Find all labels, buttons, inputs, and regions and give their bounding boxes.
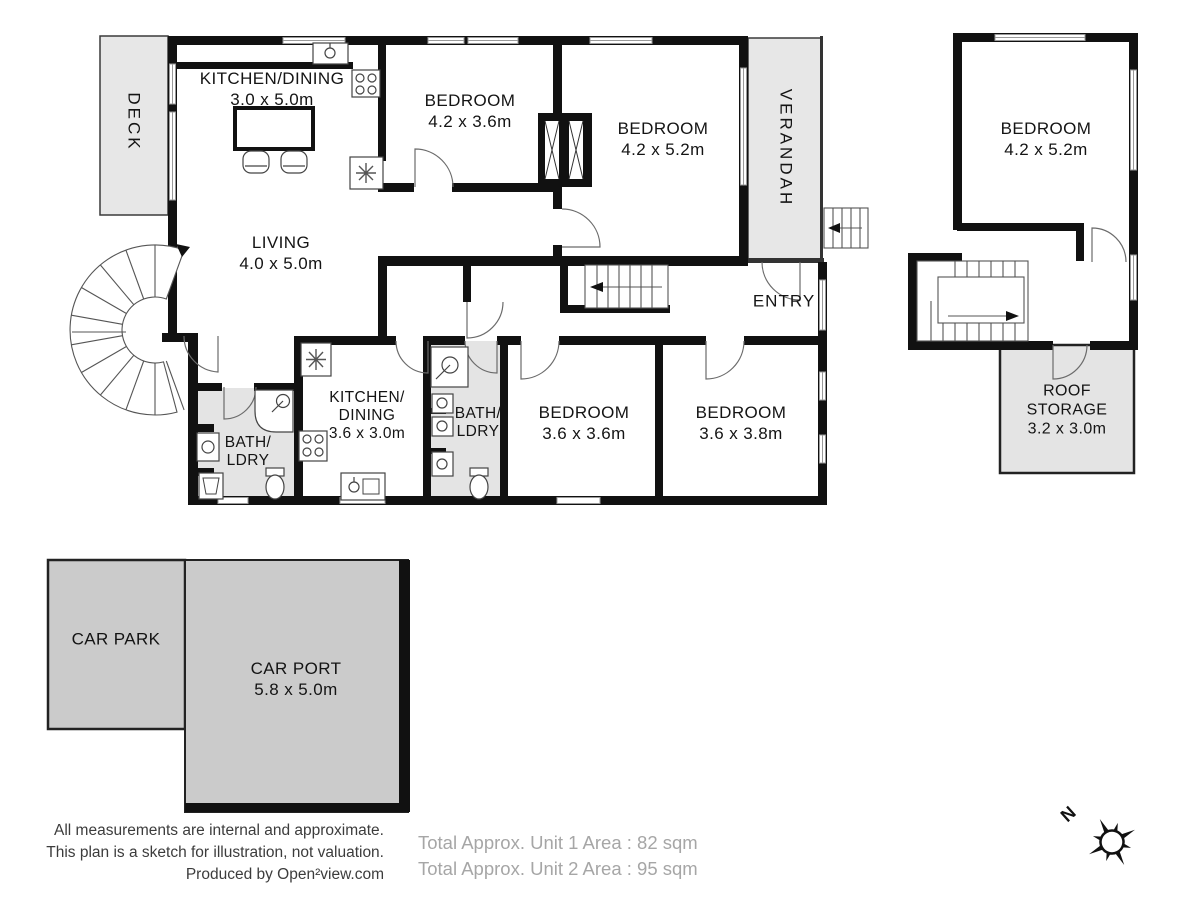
stove-icon	[299, 431, 327, 461]
stove-icon	[352, 70, 380, 97]
stool-icon	[243, 151, 269, 173]
island-bench-icon	[235, 108, 313, 149]
room-label-bedroom-2: BEDROOM 4.2 x 5.2m	[618, 118, 709, 160]
area-totals-text: Total Approx. Unit 1 Area : 82 sqm Total…	[418, 830, 698, 882]
stool-icon	[281, 151, 307, 173]
car-port-wall-right	[399, 560, 410, 812]
room-label-entry: ENTRY	[753, 291, 815, 312]
car-port-wall-bottom	[185, 803, 410, 812]
room-label-bedroom-5: BEDROOM 4.2 x 5.2m	[1001, 118, 1092, 160]
room-label-roof-storage: ROOF STORAGE 3.2 x 3.0m	[1027, 382, 1108, 439]
door-bedroom-1	[415, 149, 453, 187]
internal-stair-icon	[585, 265, 668, 308]
room-label-verandah: VERANDAH	[776, 89, 797, 207]
unit1-area-total: Total Approx. Unit 1 Area : 82 sqm	[418, 830, 698, 856]
room-label-bedroom-3: BEDROOM 3.6 x 3.6m	[539, 402, 630, 444]
door-bedroom-2	[562, 209, 600, 247]
room-label-bath-ldry-2: BATH/ LDRY	[455, 405, 502, 441]
unit2-area-total: Total Approx. Unit 2 Area : 95 sqm	[418, 856, 698, 882]
room-label-car-port: CAR PORT 5.8 x 5.0m	[251, 658, 342, 700]
room-label-bath-ldry-1: BATH/ LDRY	[225, 434, 272, 470]
door-bedroom-3	[521, 341, 559, 379]
verandah-step-icon	[824, 208, 868, 248]
floor-plan: DECK KITCHEN/DINING 3.0 x 5.0m LIVING 4.…	[0, 0, 1200, 900]
room-label-kitchen-dining-2: KITCHEN/ DINING 3.6 x 3.0m	[329, 389, 405, 443]
room-label-kitchen-dining-1: KITCHEN/DINING 3.0 x 5.0m	[200, 68, 344, 110]
room-label-bedroom-4: BEDROOM 3.6 x 3.8m	[696, 402, 787, 444]
room-label-car-park: CAR PARK	[72, 629, 161, 650]
door-unit2-landing	[1092, 228, 1126, 262]
unit2-stair-icon	[917, 261, 1028, 341]
room-label-living: LIVING 4.0 x 5.0m	[239, 232, 322, 274]
compass-rose	[1077, 807, 1147, 877]
room-label-deck: DECK	[124, 92, 145, 151]
room-label-bedroom-1: BEDROOM 4.2 x 3.6m	[425, 90, 516, 132]
disclaimer-text: All measurements are internal and approx…	[22, 820, 384, 886]
door-bedroom-4	[706, 341, 744, 379]
door-hall	[467, 302, 503, 338]
